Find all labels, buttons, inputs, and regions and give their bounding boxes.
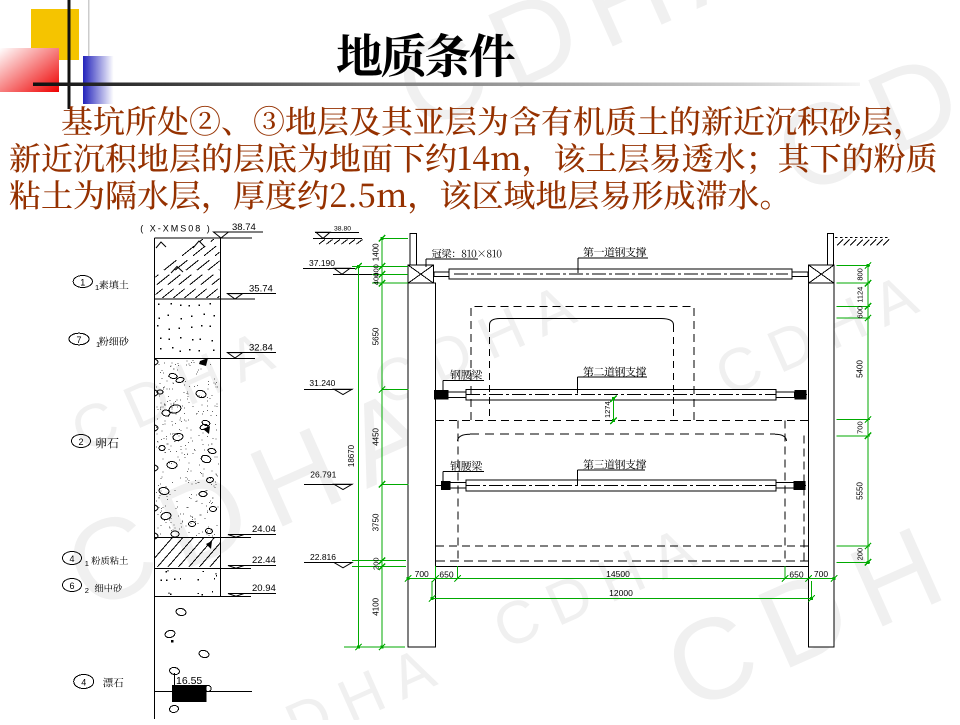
svg-text:4: 4 [69,554,74,564]
svg-text:12000: 12000 [609,588,633,598]
svg-text:( X-XMS08 ): ( X-XMS08 ) [140,224,212,234]
svg-text:1124: 1124 [856,287,865,303]
svg-text:20.94: 20.94 [252,583,276,594]
svg-text:200: 200 [856,548,865,561]
svg-text:22.44: 22.44 [252,555,276,566]
svg-text:650: 650 [789,569,803,579]
svg-text:800: 800 [856,268,865,281]
svg-text:5650: 5650 [372,327,381,345]
svg-text:22.816: 22.816 [310,552,336,562]
svg-text:1400: 1400 [372,243,381,261]
svg-text:700: 700 [415,569,429,579]
svg-text:1: 1 [95,283,99,292]
svg-text:4: 4 [81,678,86,688]
svg-text:4100: 4100 [372,597,381,615]
svg-text:600: 600 [856,306,865,319]
svg-text:2: 2 [78,437,83,447]
svg-text:31.240: 31.240 [309,378,335,388]
svg-text:2: 2 [85,586,89,595]
svg-text:CDHA: CDHA [648,457,960,720]
svg-text:650: 650 [439,569,453,579]
svg-text:38.74: 38.74 [232,222,256,233]
svg-text:1: 1 [96,340,100,349]
svg-text:24.04: 24.04 [252,524,276,535]
svg-text:14500: 14500 [606,569,630,579]
svg-text:38.80: 38.80 [334,226,351,233]
svg-text:1: 1 [85,559,89,568]
svg-text:1274: 1274 [603,401,612,418]
svg-text:7: 7 [76,335,81,345]
svg-text:3750: 3750 [372,513,381,531]
svg-text:1: 1 [80,278,85,288]
svg-text:200: 200 [372,557,381,570]
svg-text:32.84: 32.84 [249,343,273,354]
svg-text:4450: 4450 [372,427,381,445]
svg-text:6: 6 [69,581,74,591]
svg-text:26.791: 26.791 [310,469,336,479]
svg-text:37.190: 37.190 [309,258,335,268]
svg-text:700: 700 [856,421,865,434]
svg-text:CDHA: CDHA [758,0,960,220]
svg-text:35.74: 35.74 [249,284,273,295]
svg-text:700: 700 [814,569,828,579]
svg-text:5400: 5400 [856,360,865,378]
svg-text:5550: 5550 [856,482,865,500]
svg-text:400: 400 [372,273,381,286]
svg-text:18670: 18670 [347,444,356,467]
